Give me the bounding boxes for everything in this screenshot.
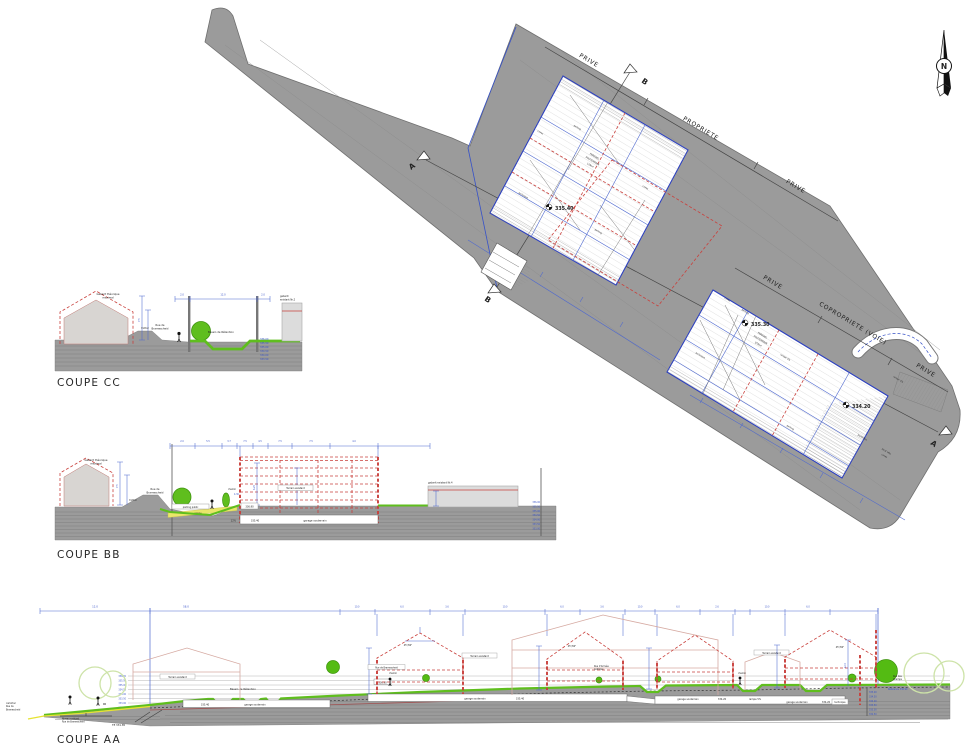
aa-dim-left: 12.0 [92,605,98,609]
aa-d6: 10.0 [638,606,643,609]
aa-er-1: 334.50 [869,695,877,698]
bb-dim-7: 4.0 [352,440,356,443]
cc-bassin-label: Bassin de Rétention [208,330,234,334]
aa-el-6: 333.00 [118,702,126,705]
cc-elev-1: 335.50 [260,342,269,345]
b1-survey-point [546,204,552,210]
marker-b-top: B [640,76,650,87]
bb-rue-label-2: Bramescheid [147,491,164,495]
aa-rue-label: Rue de Bramescheid [375,666,398,669]
coupe-bb: Gabarit théorique maximal 7.5 2.0 5.5 3.… [55,440,556,561]
bb-rue-label-1: Rue de [151,487,160,491]
aa-trees [327,660,898,684]
cc-title: COUPE CC [57,377,121,389]
aa-champs-2: Champs [893,678,903,681]
aa-angle-1: 45°/60° [404,644,413,647]
bb-gabarit-house [60,458,113,506]
aa-garage-1-label: garage souterrain [244,703,266,706]
cc-gabarit-house [60,291,133,344]
bb-elev-2: 335.00 [532,510,540,513]
aa-house-2: 45°/60° [536,632,623,690]
bb-slope-pct: 12% [231,520,237,523]
aa-d1: 6.0 [400,606,404,609]
bb-gabarit-label-2: maximal [90,462,101,466]
bb-existing-label: gabarit existant Nr.4 [428,482,453,485]
cc-existing-building [282,303,302,341]
cc-height-dim-label: 7.5 [138,318,141,322]
bb-elev-0: 336.00 [532,501,540,504]
bb-parking-public-label: parking public [183,506,199,509]
coupe-aa: 336.00 335.50 335.00 334.50 334.00 333.5… [6,605,964,747]
aa-reference-label: Référence 336.90 [888,688,908,691]
aa-angle-2: 45°/60° [568,645,577,648]
bb-dim-2: 3.7 [227,440,231,443]
aa-d10: 6.0 [806,606,810,609]
bb-height-dims [117,462,130,505]
aa-elevation-ladder-right: 335.00 334.50 334.00 333.50 333.00 332.5… [869,691,877,716]
aa-chemin-label: chemin [389,672,398,675]
aa-er-0: 335.00 [869,691,877,694]
drawing-sheet: PARKING SOUTERRAIN 119m² parking parking… [0,0,980,752]
bb-dim-0: 2.0 [180,440,184,443]
aa-garage-1-level: 335.40 [201,703,210,706]
b2-elevation-1: 335.30 [751,322,770,328]
cc-trottoir-label: trottoir [141,327,149,330]
aa-garage-2-label: garage souterrain [464,697,486,700]
bb-elev-5: 333.50 [532,523,540,526]
aa-d5: 3.6 [600,606,604,609]
bb-trottoir-label: trottoir [129,499,137,502]
aa-faint-house-2 [512,615,718,695]
bb-elev-4: 334.00 [532,519,540,522]
bb-tree-2 [223,493,230,507]
aa-garage-3-level: 334.20 [718,698,727,701]
bb-height-dim-label: 7.5 [116,484,119,488]
aa-rampe-label: rampe 5% [749,698,762,701]
aa-garage-3-label: garage souterrain [677,698,699,701]
bb-elev-6: 333.00 [532,527,540,530]
aa-er-5: 332.50 [869,713,877,716]
b2-survey-point-1 [742,320,748,326]
aa-te-label: TE 331.85 [112,723,125,727]
b2-elevation-2: 334.20 [852,404,871,410]
aa-garage-3b-label: garage souterrain [786,701,808,704]
b2-survey-point-2 [843,402,849,408]
north-arrow: N [937,30,952,96]
aa-d2: 3.6 [445,606,449,609]
north-label: N [941,62,947,71]
bb-elevation-ladder: 336.00 335.50 335.00 334.50 334.00 333.5… [532,501,540,530]
aa-garage-2-level: 335.40 [516,697,525,700]
cc-person-figure [178,332,181,342]
bb-elev-3: 334.50 [532,514,540,517]
aa-er-3: 333.50 [869,704,877,707]
cc-elev-3: 334.50 [260,350,269,353]
bb-person-figure [211,500,214,509]
bb-dim-5: 7.5 [278,440,282,443]
cc-rue-label-2: Bramescheid [152,327,169,331]
bb-dimh-1: 6.25 [253,485,256,490]
cc-dim-1: 2.0 [180,294,184,297]
aa-d4: 6.0 [560,606,564,609]
aa-terrain-label-1: Terrain existant [168,676,187,679]
coupe-cc: Gabarit théorique maximal 7.5 2.0 12.0 2… [55,291,302,389]
aa-niveau-2: Rue de Bramescheid [62,721,85,724]
cc-elev-5: 333.50 [260,358,269,361]
bb-dim-4: 4.5 [258,440,262,443]
aa-er-2: 334.00 [869,700,877,703]
bb-existing-building [428,486,518,507]
bb-title: COUPE BB [57,549,121,561]
bb-level-1: 336.90 [245,506,254,509]
cc-elev-4: 334.00 [260,354,269,357]
drawing-canvas: PARKING SOUTERRAIN 119m² parking parking… [0,0,980,752]
aa-carrefour-3: Bramescheid [6,708,21,711]
aa-terrain-label-2: Terrain existant [470,655,489,658]
aa-dim-vert: 12.5 [844,663,847,668]
bb-top-dims [170,443,430,458]
cc-elev-2: 335.00 [260,346,269,349]
bb-elev-1: 335.50 [532,505,540,508]
cc-cut-post-right [256,296,258,352]
aa-garage-3b-level: 334.20 [822,701,831,704]
aa-d0: 10.0 [355,606,360,609]
aa-d7: 6.0 [676,606,680,609]
bb-tree-1 [173,488,191,506]
bb-chemin-label: chemin [228,488,237,491]
marker-b-bottom: B [483,294,493,305]
cc-cut-post-left [188,296,190,352]
aa-d9: 10.0 [765,606,770,609]
aa-dim-total: 58.0 [183,605,189,609]
aa-el-5: 333.50 [118,698,126,701]
aa-chemin-label-2: chemin [738,672,747,675]
aa-er-4: 333.00 [869,709,877,712]
aa-arrivee-2: publique [594,668,604,671]
aa-garage-strip-2 [368,694,627,702]
aa-terrain-label-3: Terrain existant [762,652,781,655]
bb-garage-level: 335.40 [251,520,260,523]
bb-garage-label: garage souterrain [303,519,327,523]
cc-dim-3: 2.0 [261,294,265,297]
bb-terrain-existant-label: Terrain existant [286,487,305,490]
site-plan: PARKING SOUTERRAIN 119m² parking parking… [205,8,960,529]
cc-elevation-ladder: 336.00 335.50 335.00 334.50 334.00 333.5… [260,338,269,361]
bb-gabarit-label-1: Gabarit théorique [85,458,108,462]
aa-bassin-label: Bassin de Rétention [230,687,256,691]
cc-elev-0: 336.00 [260,338,269,341]
aa-d3: 10.0 [503,606,508,609]
cc-gabarit-label-1: Gabarit théorique [97,292,120,296]
cc-rue-label-1: Rue de [156,323,165,327]
cc-existing-label-2: existant Nr.2 [280,299,296,302]
aa-title: COUPE AA [57,734,121,746]
bb-dim-6: 7.5 [309,440,313,443]
cc-dim-2: 12.0 [220,294,226,297]
aa-angle-4: 45°/60° [836,646,845,649]
bb-dim-3: 7.5 [243,440,247,443]
bb-dim-1: 5.5 [206,440,210,443]
aa-technique-label: technique [835,701,847,704]
bb-dimh-2: 4.30 [234,493,239,496]
aa-d8: 2.6 [715,606,719,609]
cc-gabarit-label-2: maximal [102,296,113,300]
